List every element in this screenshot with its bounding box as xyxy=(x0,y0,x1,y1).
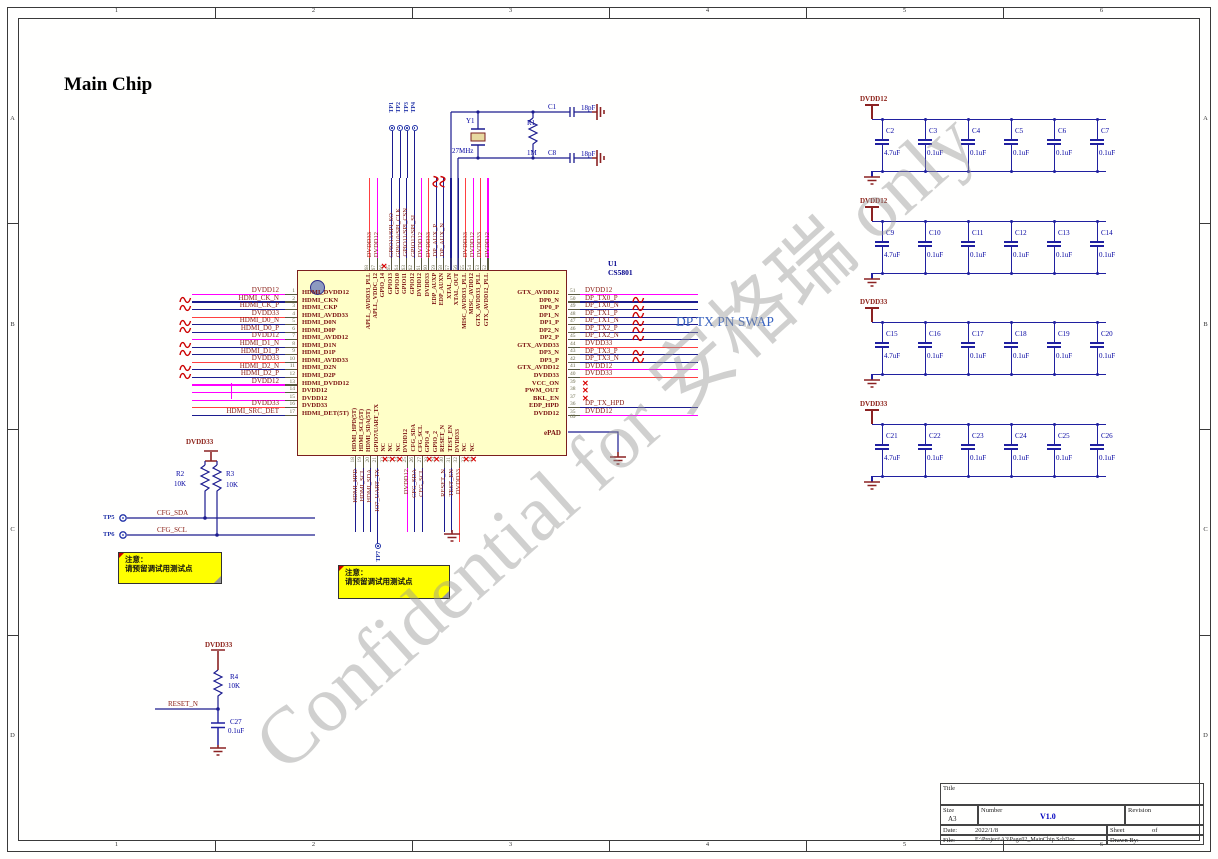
pin-number: 13 xyxy=(290,379,296,385)
cap-plate xyxy=(918,139,932,141)
pin-number: 10 xyxy=(290,356,296,362)
cap-ref: C20 xyxy=(1101,330,1113,338)
net-label: TEST_EN xyxy=(448,469,455,496)
pin-number: 21 xyxy=(372,457,378,463)
capacitor: C12 0.1uF xyxy=(991,221,1034,273)
pin-name: HDMI_D0N xyxy=(302,319,364,327)
decoupling-group-3: DVDD33 C15 4.7uF C16 0.1uF xyxy=(858,298,1110,398)
number-value: V1.0 xyxy=(1040,812,1056,821)
cap-lead xyxy=(968,424,969,444)
frame-tick xyxy=(215,7,216,18)
pin-name: RESET_N xyxy=(440,425,446,452)
wire xyxy=(192,309,297,310)
no-connect-icon: ✕ xyxy=(470,456,477,464)
titleblock-date-cell xyxy=(940,825,1107,835)
dp-swap-annotation: DP TX PN SWAP xyxy=(676,314,774,330)
cap-value: 0.1uF xyxy=(927,251,943,259)
pin-name: CFG_SDA xyxy=(411,424,417,452)
file-value: E:\Project\A3\Page02_MainChip.SchDoc xyxy=(975,837,1075,843)
pin-name: GPIO13 xyxy=(388,273,394,294)
revision-label: Revision xyxy=(1128,807,1151,814)
pin-row: HDMI_D1_N 8 xyxy=(178,342,297,350)
frame-col-label: 5 xyxy=(895,7,915,18)
pin-row: HDMI_D2_N 11 xyxy=(178,364,297,372)
top-testpoints: TP1 TP2 TP3 TP4 xyxy=(389,102,419,178)
pin-row: HDMI_D0_N 5 xyxy=(178,319,297,327)
cap-lead xyxy=(1054,119,1055,139)
schematic-sheet: 123456 123456 ABCD ABCD Main Chip Confid… xyxy=(0,0,1218,859)
cap-ref: C15 xyxy=(886,330,898,338)
capacitor: C15 4.7uF xyxy=(862,322,905,374)
pin-name: GTX_AVDD33_PLL xyxy=(476,273,482,326)
net-label: GPIO12/SPI_SI xyxy=(410,215,417,257)
pin-name-col: NC xyxy=(470,386,477,454)
wire xyxy=(192,384,297,385)
cap-value: 0.1uF xyxy=(1056,149,1072,157)
cap-value: 0.1uF xyxy=(1013,251,1029,259)
pin-number: 49 xyxy=(570,303,576,309)
capacitor: C21 4.7uF xyxy=(862,424,905,476)
date-label: Date: xyxy=(943,827,957,834)
pin-number: 37 xyxy=(570,394,576,400)
pin-name: DVDD33 xyxy=(455,429,461,452)
cap-lead xyxy=(1054,145,1055,172)
cap-ref: C21 xyxy=(886,432,898,440)
capacitor: C24 0.1uF xyxy=(991,424,1034,476)
capacitor: C5 0.1uF xyxy=(991,119,1034,171)
pin-name: DVDD12 xyxy=(403,429,409,452)
frame-col-label: 6 xyxy=(1092,7,1112,18)
pin-number: 17 xyxy=(290,409,296,415)
cap-lead xyxy=(1097,119,1098,139)
cap-lead xyxy=(882,424,883,444)
pin-name: HDMI_D2P xyxy=(302,372,364,380)
pin-number: 64 xyxy=(394,265,400,271)
net-label: HDMI_SDA xyxy=(366,469,373,503)
frame-row-label: A xyxy=(1200,115,1211,127)
cap-lead xyxy=(1097,424,1098,444)
cap-ref: C3 xyxy=(929,127,937,135)
pin-name: GPIO10 xyxy=(395,273,401,294)
cap-lead xyxy=(882,322,883,342)
pin-number: 39 xyxy=(570,379,576,385)
cap-lead xyxy=(1011,145,1012,172)
pin-column: 34 ✕ xyxy=(470,456,477,548)
net-label: DVDD12 xyxy=(403,469,410,494)
cap-plate xyxy=(961,342,975,344)
cap-ref: C14 xyxy=(1101,229,1113,237)
bus-wire xyxy=(872,374,1106,375)
pin-number: 65 xyxy=(386,265,392,271)
wire xyxy=(400,131,401,178)
pin-name: MISC_AVDD12 xyxy=(469,273,475,314)
pin-name: GPIO_2 xyxy=(433,431,439,452)
frame-tick xyxy=(1200,223,1211,224)
frame-row-label: B xyxy=(7,321,18,333)
net-label: DVDD12 xyxy=(373,232,380,257)
frame-col-label: 3 xyxy=(501,841,521,852)
frame-row-label: B xyxy=(1200,321,1211,333)
pin-name: CFG_SCL xyxy=(418,425,424,452)
cap-plate xyxy=(1004,139,1018,141)
testpoint-label: TP4 xyxy=(411,102,417,113)
pin-name: XTAL_OUT xyxy=(454,273,460,305)
epad-pin-number: 69 xyxy=(570,414,576,420)
pin-number: 18 xyxy=(350,457,356,463)
capacitor: C16 0.1uF xyxy=(905,322,948,374)
frame-row-label: D xyxy=(1200,732,1211,744)
pin-name: TEST_EN xyxy=(448,425,454,452)
pin-number: 15 xyxy=(290,394,296,400)
frame-tick xyxy=(609,841,610,852)
cap-plate xyxy=(1004,342,1018,344)
cap-value: 0.1uF xyxy=(1099,454,1115,462)
note-line1: 注意： xyxy=(345,568,445,577)
pin-name: HDMI_CKP xyxy=(302,304,364,312)
cap-lead xyxy=(1097,450,1098,477)
pin-column: 22 ✕ xyxy=(382,456,389,548)
cap-lead xyxy=(925,322,926,342)
power-net-label: DVDD12 xyxy=(860,95,887,103)
cap-value: 0.1uF xyxy=(927,149,943,157)
pin-row: DVDD33 10 xyxy=(178,357,297,365)
cap-plate xyxy=(961,139,975,141)
cap-lead xyxy=(968,145,969,172)
pin-row: DVDD12 13 xyxy=(178,380,297,388)
cap-value: 4.7uF xyxy=(884,149,900,157)
diff-pair-icon xyxy=(632,356,645,364)
frame-tick xyxy=(609,7,610,18)
cap-ref: C7 xyxy=(1101,127,1109,135)
cap-row: C15 4.7uF C16 0.1uF C17 0.1uF xyxy=(862,322,1120,374)
cap-plate xyxy=(1090,444,1104,446)
chip-right-pins: DVDD12 ✕ 51 DP_TX0_P ✕ 50 DP_TX0_N ✕ 49 … xyxy=(568,289,704,417)
size-label: Size xyxy=(943,807,954,814)
pin-number: 9 xyxy=(292,348,295,354)
testpoint: TP4 xyxy=(411,102,418,178)
cap-lead xyxy=(1011,247,1012,274)
chip-top-pin-names: APLL_AVDD33_PLL APLL_VDDC_12 GPIO_14 GPI… xyxy=(366,273,492,343)
pin-name: MISC_AVDD33_PLL xyxy=(462,273,468,329)
pin-number: 42 xyxy=(570,356,576,362)
cap-lead xyxy=(1011,424,1012,444)
frame-row-label: C xyxy=(7,526,18,538)
test-en-ground-icon xyxy=(444,530,464,546)
pin-name: NC xyxy=(470,443,476,452)
cap-ref: C19 xyxy=(1058,330,1070,338)
pin-name: GTX_AVDD12_PLL xyxy=(484,273,490,326)
cap-lead xyxy=(1054,450,1055,477)
diff-pair-icon xyxy=(179,349,192,357)
pin-name: HDMI_CKN xyxy=(302,297,364,305)
pin-name: HDMI_D0P xyxy=(302,327,364,335)
wire xyxy=(192,354,297,355)
pin-name: HDMI_HPD(5T) xyxy=(352,408,358,452)
diff-pair-icon xyxy=(179,372,192,380)
crystal-circuit xyxy=(430,96,635,272)
pin-number: 5 xyxy=(292,318,295,324)
pin-name: HDMI_D2N xyxy=(302,364,364,372)
capacitor: C20 0.1uF xyxy=(1077,322,1120,374)
cap-plate xyxy=(1004,241,1018,243)
cap-ref: C13 xyxy=(1058,229,1070,237)
capacitor: C10 0.1uF xyxy=(905,221,948,273)
cap-value: 0.1uF xyxy=(970,352,986,360)
tp7-label: TP7 xyxy=(376,551,382,562)
capacitor: C3 0.1uF xyxy=(905,119,948,171)
pin-number: 14 xyxy=(290,386,296,392)
pin-column: 28 ✕ xyxy=(426,456,433,548)
cfg-pullup-circuit xyxy=(100,437,330,545)
cap-lead xyxy=(1011,450,1012,477)
pin-name: NC xyxy=(388,443,394,452)
pin-column: CFG_SCL 27 ✕ xyxy=(419,456,426,548)
cap-lead xyxy=(882,119,883,139)
cap-lead xyxy=(925,221,926,241)
cap-lead xyxy=(925,348,926,375)
pin-name: DVDD33 xyxy=(462,372,563,380)
pin-name: GPIO_14 xyxy=(380,273,386,297)
pin-name: HDMI_D1P xyxy=(302,349,364,357)
pin-number: 26 xyxy=(409,457,415,463)
testpoint-label: TP2 xyxy=(396,102,402,113)
pin-number: 12 xyxy=(290,371,296,377)
cap-ref: C11 xyxy=(972,229,983,237)
titleblock-title-cell xyxy=(940,783,1204,805)
frame-row-label: A xyxy=(7,115,18,127)
pin-row: HDMI_CK_P 3 xyxy=(178,304,297,312)
pin-name: DVDD33 xyxy=(425,273,431,296)
cap-plate xyxy=(1047,241,1061,243)
pin-name: DP3_N xyxy=(462,349,563,357)
cap-plate xyxy=(918,241,932,243)
pin-row: 15 xyxy=(178,395,297,403)
cap-plate xyxy=(918,342,932,344)
cap-ref: C23 xyxy=(972,432,984,440)
cap-lead xyxy=(882,450,883,477)
cap-lead xyxy=(968,247,969,274)
cap-lead xyxy=(1054,424,1055,444)
cap-value: 0.1uF xyxy=(1056,454,1072,462)
frame-col-label: 4 xyxy=(698,841,718,852)
wire xyxy=(392,131,393,178)
note-box: 注意： 请预留调试用测试点 xyxy=(338,565,450,599)
testpoint: TP2 xyxy=(396,102,403,178)
cap-lead xyxy=(1097,145,1098,172)
pin-name: HDMI_DVDD12 xyxy=(302,289,364,297)
cap-ref: C10 xyxy=(929,229,941,237)
note-line2: 请预留调试用测试点 xyxy=(345,577,445,586)
pin-name-col: XTAL_OUT xyxy=(455,273,462,343)
pin-name: NC xyxy=(381,443,387,452)
frame-tick xyxy=(412,841,413,852)
cap-plate xyxy=(1004,444,1018,446)
cap-plate xyxy=(961,444,975,446)
power-flag-stem xyxy=(871,410,872,424)
pin-row: HDMI_D1_P 9 xyxy=(178,349,297,357)
size-value: A3 xyxy=(948,815,957,823)
cap-lead xyxy=(925,247,926,274)
cap-plate xyxy=(875,342,889,344)
pin-number: 32 xyxy=(453,457,459,463)
epad-pin-name: ePAD xyxy=(544,429,561,437)
ground-icon xyxy=(862,482,882,496)
capacitor: C2 4.7uF xyxy=(862,119,905,171)
net-label: GPIO11/SPI_CSN xyxy=(402,208,409,257)
date-value: 2022/1/8 xyxy=(975,827,998,834)
pin-number: 3 xyxy=(292,303,295,309)
net-label: DVDD12 xyxy=(417,232,424,257)
cap-value: 0.1uF xyxy=(970,251,986,259)
net-label: GPIO13/SPI_SO xyxy=(388,213,395,257)
pin-row: HDMI_CK_N 2 xyxy=(178,297,297,305)
pin-number: 11 xyxy=(290,363,295,369)
pin-name: HDMI_SDA(5T) xyxy=(366,409,372,452)
capacitor: C11 0.1uF xyxy=(948,221,991,273)
cap-ref: C4 xyxy=(972,127,980,135)
pin-name: GPIO7/UART_TX xyxy=(374,404,380,452)
ground-icon xyxy=(862,380,882,394)
cap-value: 4.7uF xyxy=(884,352,900,360)
reset-circuit xyxy=(150,638,275,766)
pin-number: 31 xyxy=(446,457,452,463)
cap-lead xyxy=(968,221,969,241)
capacitor: C14 0.1uF xyxy=(1077,221,1120,273)
capacitor: C9 4.7uF xyxy=(862,221,905,273)
cap-ref: C26 xyxy=(1101,432,1113,440)
decoupling-group-2: DVDD12 C9 4.7uF C10 0.1uF xyxy=(858,197,1110,297)
cap-value: 0.1uF xyxy=(1013,352,1029,360)
cap-row: C2 4.7uF C3 0.1uF C4 0.1uF xyxy=(862,119,1120,171)
cap-value: 0.1uF xyxy=(970,454,986,462)
cap-lead xyxy=(1011,221,1012,241)
cap-lead xyxy=(882,221,883,241)
pin-name: DP3_P xyxy=(462,357,563,365)
cap-value: 0.1uF xyxy=(1056,352,1072,360)
cap-value: 4.7uF xyxy=(884,454,900,462)
pin-number: 62 xyxy=(408,265,414,271)
pin-row: HDMI_D0_P 6 xyxy=(178,327,297,335)
of-label: of xyxy=(1152,827,1157,834)
cap-plate xyxy=(1090,139,1104,141)
testpoint: TP3 xyxy=(404,102,411,178)
pin-name: NC xyxy=(396,443,402,452)
frame-row-label: D xyxy=(7,732,18,744)
pin-number: 67 xyxy=(371,265,377,271)
power-net-label: DVDD33 xyxy=(860,400,887,408)
chip-left-pins: DVDD12 1 HDMI_CK_N 2 HDMI_CK_P 3 DVDD33 … xyxy=(178,289,297,417)
cap-plate xyxy=(1047,139,1061,141)
wire xyxy=(192,400,297,401)
diff-pair-icon xyxy=(179,304,192,312)
power-flag-stem xyxy=(871,308,872,322)
cap-value: 0.1uF xyxy=(1013,149,1029,157)
pin-number: 4 xyxy=(292,311,295,317)
pin-number: 45 xyxy=(570,333,576,339)
pin-name: XTAL_IN xyxy=(447,273,453,299)
cap-ref: C25 xyxy=(1058,432,1070,440)
capacitor: C19 0.1uF xyxy=(1034,322,1077,374)
cap-plate xyxy=(875,444,889,446)
ground-icon xyxy=(862,279,882,293)
cap-plate xyxy=(1090,241,1104,243)
frame-tick xyxy=(1200,635,1211,636)
pin-name: HDMI_AVDD12 xyxy=(302,334,364,342)
pin-number: 2 xyxy=(292,296,295,302)
pin-row: 14 xyxy=(178,387,297,395)
cap-ref: C9 xyxy=(886,229,894,237)
net-label: HDMI_HPD xyxy=(352,469,359,503)
cap-value: 0.1uF xyxy=(927,454,943,462)
cap-row: C9 4.7uF C10 0.1uF C11 0.1uF xyxy=(862,221,1120,273)
pin-number: 47 xyxy=(570,318,576,324)
diff-pair-icon xyxy=(632,334,645,342)
bus-wire xyxy=(872,273,1106,274)
cap-ref: C22 xyxy=(929,432,941,440)
pin-number: 68 xyxy=(364,265,370,271)
pin-number: 6 xyxy=(292,326,295,332)
frame-col-label: 1 xyxy=(107,7,127,18)
pin-name: APLL_VDDC_12 xyxy=(373,273,379,318)
power-flag-stem xyxy=(871,207,872,221)
pin-number: 43 xyxy=(570,348,576,354)
cap-value: 0.1uF xyxy=(970,149,986,157)
power-flag-stem xyxy=(871,105,872,119)
capacitor: C26 0.1uF xyxy=(1077,424,1120,476)
title-label: Title xyxy=(943,785,955,792)
cap-ref: C12 xyxy=(1015,229,1027,237)
frame-col-label: 2 xyxy=(304,841,324,852)
pin-column: IO7_UART_TX 21 ✕ xyxy=(374,456,381,548)
pin-number: 51 xyxy=(570,288,576,294)
cap-lead xyxy=(1011,119,1012,139)
cap-ref: C17 xyxy=(972,330,984,338)
power-net-label: DVDD33 xyxy=(860,298,887,306)
net-label: DVDD12 xyxy=(585,407,612,415)
frame-tick xyxy=(7,223,18,224)
wire xyxy=(192,415,297,416)
pin-number: 48 xyxy=(570,311,576,317)
page-title: Main Chip xyxy=(64,74,152,96)
cap-value: 0.1uF xyxy=(1013,454,1029,462)
testpoint: TP1 xyxy=(389,102,396,178)
cap-lead xyxy=(968,322,969,342)
pin-name: GTX_AVDD12 xyxy=(462,364,563,372)
net-label: HDMI_SCL xyxy=(359,469,366,502)
pin-number: 38 xyxy=(570,386,576,392)
capacitor: C7 0.1uF xyxy=(1077,119,1120,171)
cap-lead xyxy=(1011,348,1012,375)
capacitor: C18 0.1uF xyxy=(991,322,1034,374)
pin-name: GPIO12 xyxy=(410,273,416,294)
pin-row: DVDD33 4 xyxy=(178,312,297,320)
cap-lead xyxy=(1054,221,1055,241)
frame-col-label: 4 xyxy=(698,7,718,18)
pin-number: 20 xyxy=(365,457,371,463)
pin-number: 8 xyxy=(292,341,295,347)
testpoint-label: TP1 xyxy=(389,102,395,113)
cap-lead xyxy=(882,348,883,375)
note-line2: 请预留调试用测试点 xyxy=(125,564,217,573)
cap-lead xyxy=(925,424,926,444)
pin-number: 25 xyxy=(402,457,408,463)
capacitor: C13 0.1uF xyxy=(1034,221,1077,273)
pin-row: DVDD12 ✕ 35 xyxy=(568,410,704,418)
frame-tick xyxy=(1003,7,1004,18)
cap-value: 0.1uF xyxy=(1099,149,1115,157)
pin-name: HDMI_D1N xyxy=(302,342,364,350)
cap-lead xyxy=(1054,348,1055,375)
